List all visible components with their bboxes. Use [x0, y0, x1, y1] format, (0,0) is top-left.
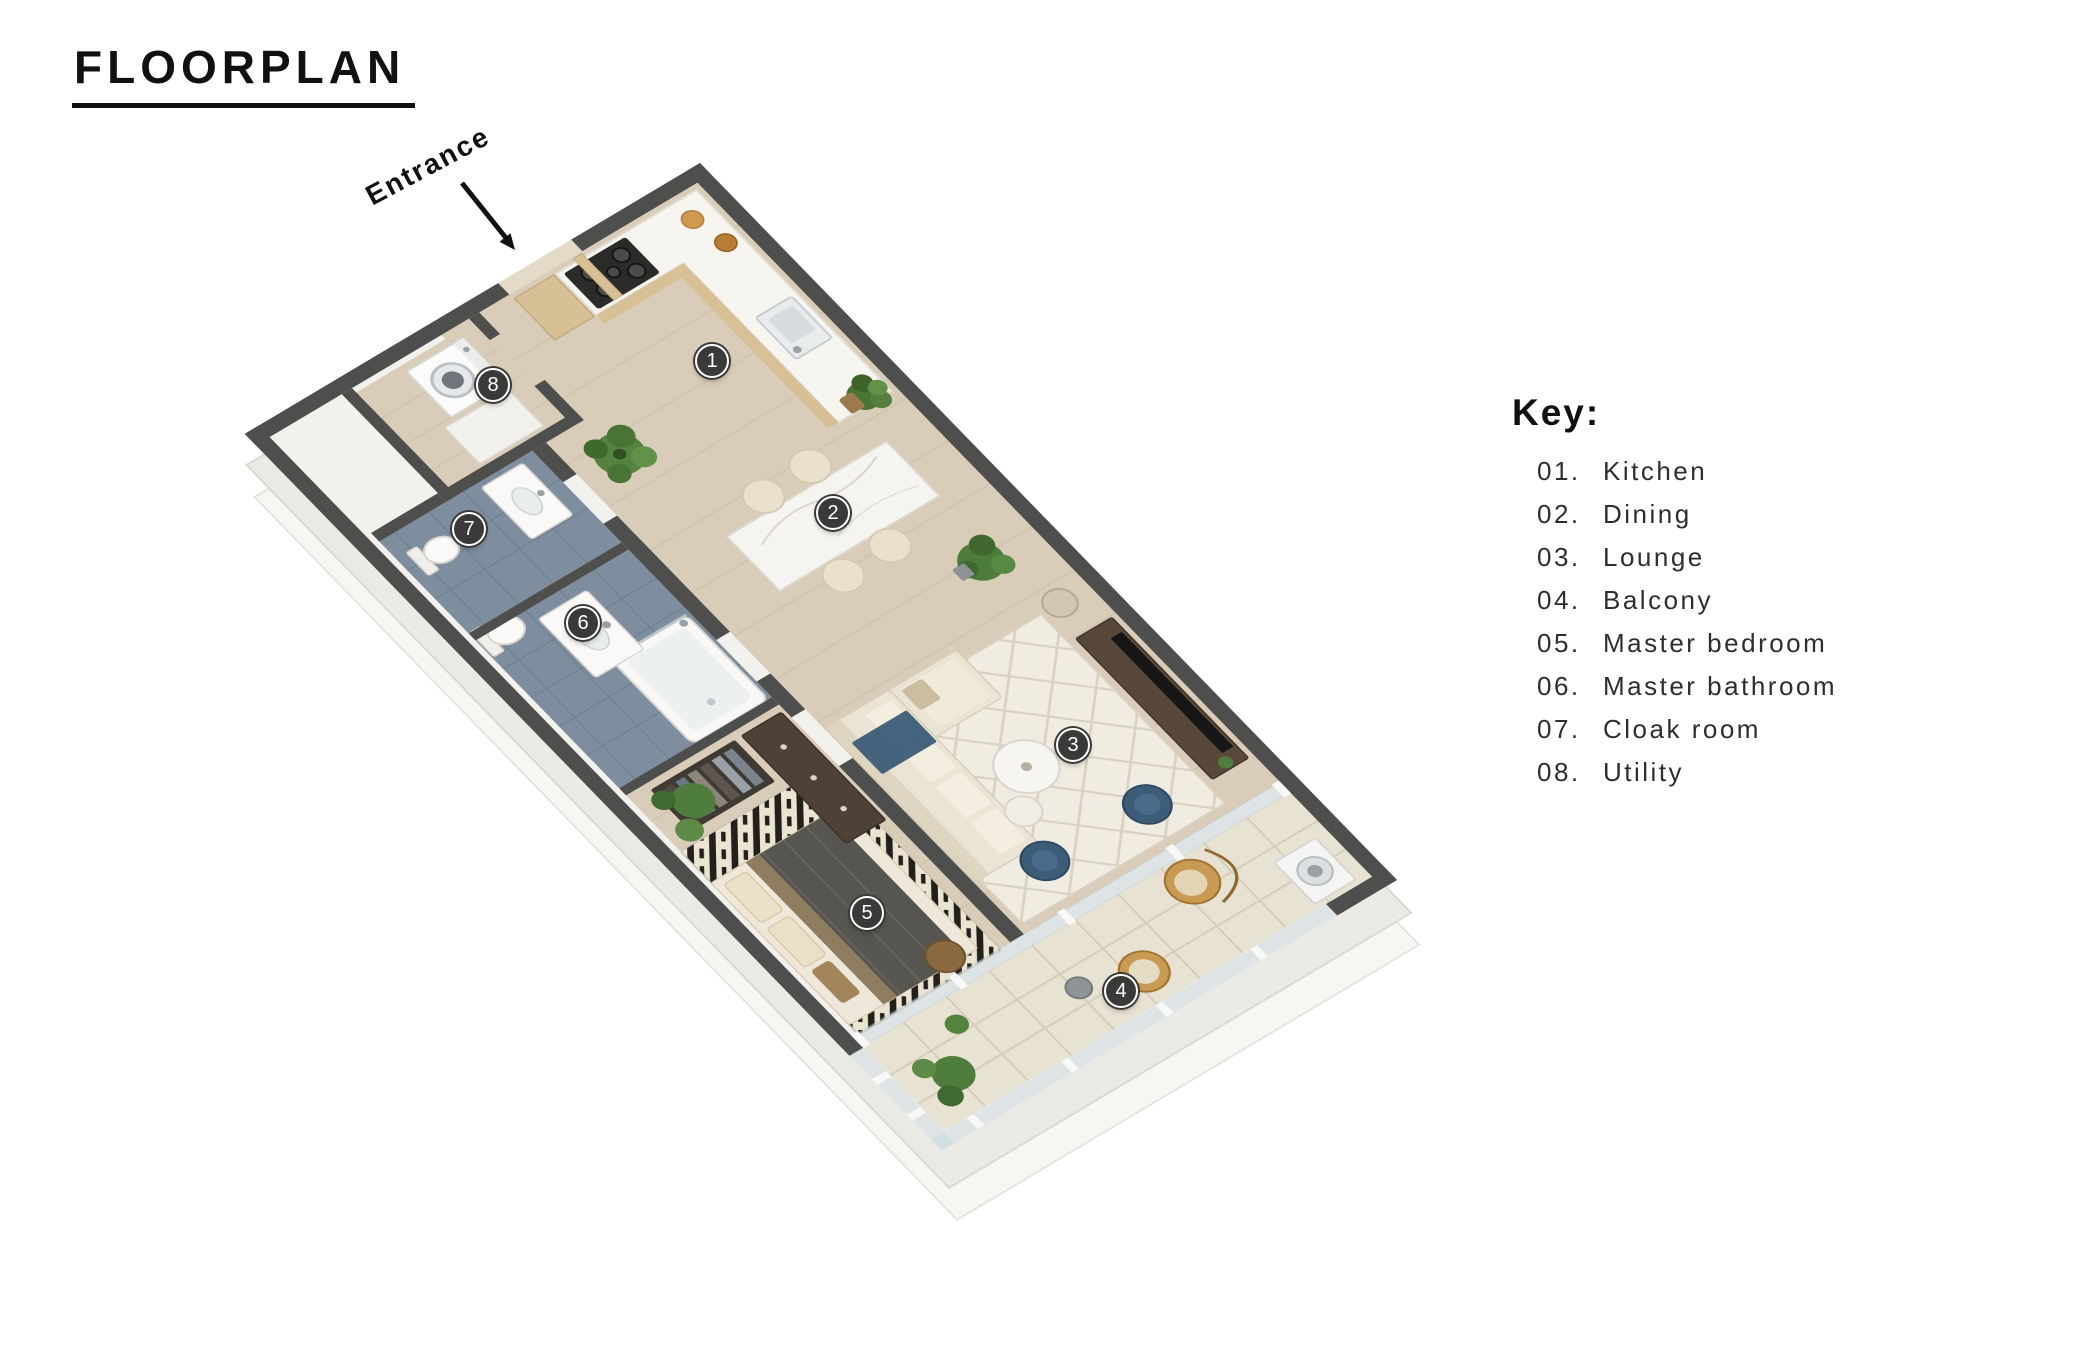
- key-item-utility: 08. Utility: [1537, 757, 1837, 800]
- key-panel: Key: 01. Kitchen 02. Dining 03. Lounge 0…: [1512, 392, 1837, 800]
- key-item-master-bathroom: 06. Master bathroom: [1537, 671, 1837, 714]
- key-items: 01. Kitchen 02. Dining 03. Lounge 04. Ba…: [1537, 456, 1837, 800]
- key-item-lounge: 03. Lounge: [1537, 542, 1837, 585]
- key-item-cloak-room: 07. Cloak room: [1537, 714, 1837, 757]
- room-marker-dining: 2: [816, 496, 850, 530]
- room-marker-lounge: 3: [1056, 728, 1090, 762]
- room-marker-utility: 8: [476, 368, 510, 402]
- key-item-kitchen: 01. Kitchen: [1537, 456, 1837, 499]
- room-marker-kitchen: 1: [695, 344, 729, 378]
- key-heading: Key:: [1512, 392, 1837, 434]
- key-item-master-bedroom: 05. Master bedroom: [1537, 628, 1837, 671]
- room-marker-master-bathroom: 6: [566, 606, 600, 640]
- room-marker-master-bedroom: 5: [850, 896, 884, 930]
- room-marker-cloak-room: 7: [452, 512, 486, 546]
- key-item-dining: 02. Dining: [1537, 499, 1837, 542]
- floorplan-page: FLOORPLAN Entrance Key: 01. Kitchen 02. …: [0, 0, 2090, 1350]
- room-marker-balcony: 4: [1104, 974, 1138, 1008]
- entrance-arrow-icon: [462, 183, 515, 250]
- key-item-balcony: 04. Balcony: [1537, 585, 1837, 628]
- page-title: FLOORPLAN: [72, 40, 415, 108]
